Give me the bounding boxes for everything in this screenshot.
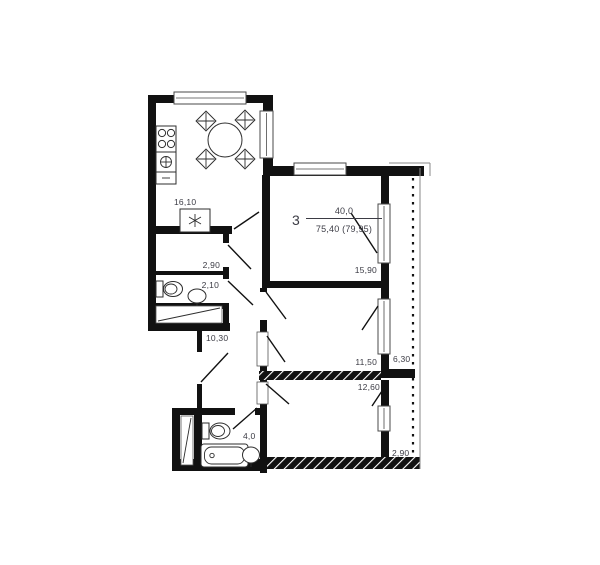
room-label-balcony-bottom: 2,90 xyxy=(392,448,409,458)
window xyxy=(260,111,273,158)
chair-icon xyxy=(235,110,255,130)
door-swing-storage xyxy=(228,245,251,269)
bathtub-icon xyxy=(201,444,248,467)
cased-opening xyxy=(257,382,268,404)
floor-plan-drawing: 16,10 2,90 2,10 10,30 4,0 15,90 11,50 12… xyxy=(0,0,600,565)
room-label-wc: 2,10 xyxy=(202,280,219,290)
door-swing-bathroom xyxy=(233,408,257,429)
doors xyxy=(201,212,388,429)
washbasin-icon xyxy=(188,289,206,303)
room-label-kitchen: 16,10 xyxy=(174,197,196,207)
door-swing-entrance xyxy=(201,353,228,382)
balcony-door-window xyxy=(378,204,390,263)
floor-plan-page: 16,10 2,90 2,10 10,30 4,0 15,90 11,50 12… xyxy=(0,0,600,565)
bathroom-fixtures xyxy=(181,416,260,467)
chair-icon xyxy=(235,149,255,169)
room-label-bedroom-middle: 11,50 xyxy=(355,357,377,367)
living-area-label: 40,0 xyxy=(335,206,353,216)
room-label-hallway: 10,30 xyxy=(206,333,228,343)
total-area-label: 75,40 (79,95) xyxy=(316,224,372,234)
rooms-count-label: 3 xyxy=(292,212,300,228)
balcony-glazing xyxy=(389,163,430,469)
door-swing-hallway xyxy=(267,336,285,362)
washing-machine-icon xyxy=(180,209,210,232)
balcony-door-window xyxy=(378,299,390,354)
balcony-door-window xyxy=(378,406,390,431)
room-label-bedroom-bottom: 12,60 xyxy=(358,382,380,392)
door-swing-balcony-middle xyxy=(362,306,378,330)
door-swing-bedroom-middle xyxy=(266,292,286,319)
apartment-title: 3 40,0 75,40 (79,95) xyxy=(292,206,382,234)
door-swing-wc xyxy=(228,281,253,305)
kitchen-fixtures xyxy=(156,110,255,232)
room-label-storage: 2,90 xyxy=(203,260,220,270)
room-label-living: 15,90 xyxy=(355,265,377,275)
cased-opening xyxy=(257,332,268,366)
dining-table-icon xyxy=(208,123,242,157)
window xyxy=(294,163,346,175)
wc-fixtures xyxy=(156,281,206,306)
wardrobe xyxy=(156,306,222,323)
load-bearing-wall xyxy=(267,457,420,469)
toilet-tank xyxy=(202,423,209,439)
window xyxy=(174,92,246,104)
room-label-balcony-right: 6,30 xyxy=(393,354,410,364)
load-bearing-wall xyxy=(259,371,381,380)
door-swing-kitchen xyxy=(234,212,259,229)
toilet-tank xyxy=(156,281,163,297)
door-swing-bedroom-bottom xyxy=(266,384,289,404)
toilet-icon xyxy=(164,282,183,297)
room-label-bathroom: 4,0 xyxy=(243,431,255,441)
